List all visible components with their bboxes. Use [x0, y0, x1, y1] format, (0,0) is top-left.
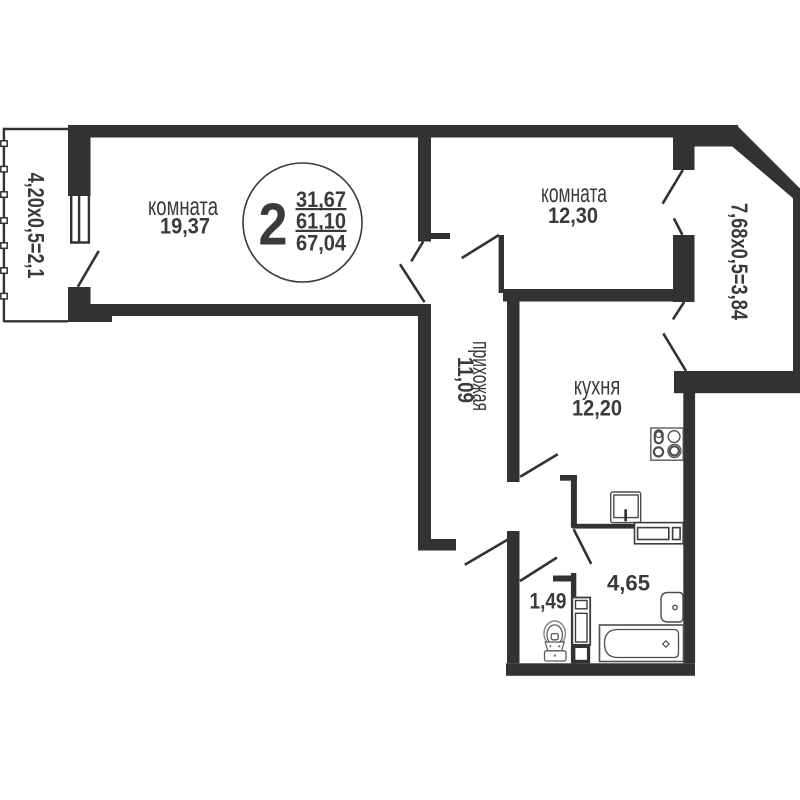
svg-text:67,04: 67,04	[296, 231, 347, 256]
svg-text:11,09: 11,09	[453, 357, 478, 403]
svg-text:1,49: 1,49	[530, 588, 567, 613]
svg-text:12,20: 12,20	[572, 396, 622, 421]
svg-text:12,30: 12,30	[548, 203, 598, 228]
svg-text:19,37: 19,37	[160, 214, 210, 239]
svg-text:4,65: 4,65	[607, 571, 650, 596]
svg-text:2: 2	[259, 192, 288, 258]
svg-text:4,20x0,5=2,1: 4,20x0,5=2,1	[23, 173, 49, 279]
svg-text:7,68x0,5=3,84: 7,68x0,5=3,84	[726, 203, 752, 320]
